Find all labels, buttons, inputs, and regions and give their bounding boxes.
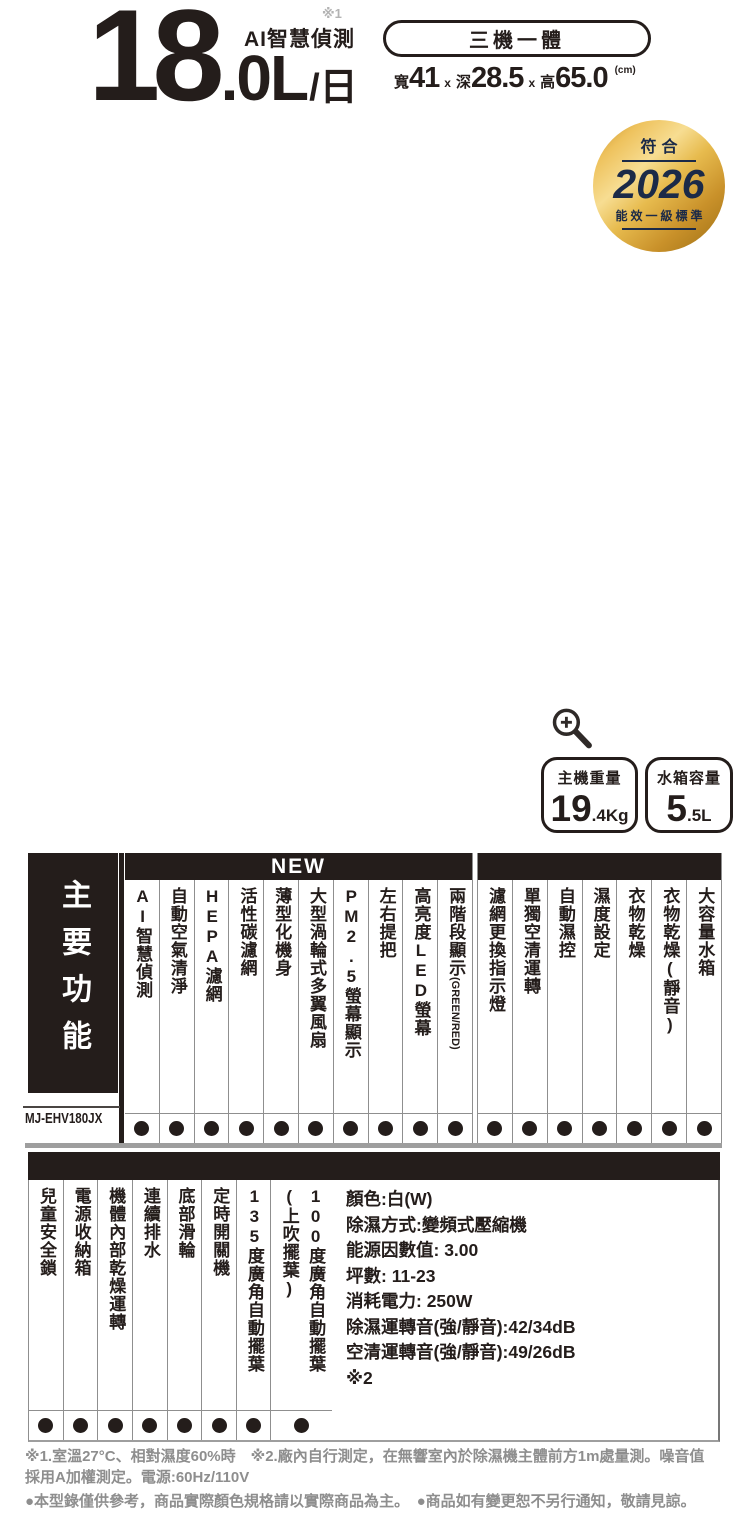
feature-column: 衣物乾燥(靜音) bbox=[651, 880, 686, 1113]
height-value: 65.0 bbox=[555, 62, 607, 94]
feature-column: 濕度設定 bbox=[582, 880, 617, 1113]
unit-weight-label: 主機重量 bbox=[544, 767, 635, 788]
other-features-group: 濾網更換指示燈單獨空清運轉自動濕控濕度設定衣物乾燥衣物乾燥(靜音)大容量水箱 bbox=[477, 853, 722, 1143]
daily-capacity: 18.0L/日 bbox=[88, 0, 358, 120]
height-label: 高 bbox=[540, 74, 555, 91]
feature-column: 兒童安全鎖 bbox=[29, 1180, 63, 1410]
capacity-per-day: /日 bbox=[309, 67, 358, 109]
new-features-group: NEW AI智慧偵測自動空氣清淨HEPA濾網活性碳濾網薄型化機身大型渦輪式多翼風… bbox=[125, 853, 473, 1143]
secondary-columns: 兒童安全鎖電源收納箱機體內部乾燥運轉連續排水底部滑輪定時開關機135度廣角自動擺… bbox=[29, 1180, 332, 1410]
feature-column: 電源收納箱 bbox=[63, 1180, 98, 1410]
footnote-line: ※1.室溫27°C、相對濕度60%時 ※2.廠內自行測定，在無響室內於除濕機主體… bbox=[25, 1447, 730, 1468]
feature-column: 定時開關機 bbox=[201, 1180, 236, 1410]
feature-dot bbox=[294, 1418, 309, 1433]
tank-capacity-box: 水箱容量 5.5L bbox=[645, 757, 733, 833]
feature-column: 機體內部乾燥運轉 bbox=[97, 1180, 132, 1410]
feature-dot-cell bbox=[270, 1411, 332, 1440]
main-features-title: 主要功能 bbox=[51, 879, 95, 1067]
ai-detect-label: AI智慧偵測 bbox=[244, 23, 355, 53]
dim-unit: (cm) bbox=[615, 65, 636, 76]
spec-line: 能源因數值: 3.00 bbox=[346, 1238, 718, 1264]
feature-dot-cell bbox=[437, 1114, 472, 1143]
feature-column: 100度廣角自動擺葉(上吹擺葉) bbox=[270, 1180, 332, 1410]
feature-column: 活性碳濾網 bbox=[228, 880, 263, 1113]
feature-dot bbox=[239, 1121, 254, 1136]
feature-dot-cell bbox=[263, 1114, 298, 1143]
secondary-features-table: 兒童安全鎖電源收納箱機體內部乾燥運轉連續排水底部滑輪定時開關機135度廣角自動擺… bbox=[25, 1152, 722, 1442]
tank-capacity-label: 水箱容量 bbox=[648, 767, 730, 788]
feature-dot bbox=[627, 1121, 642, 1136]
feature-column: 自動濕控 bbox=[547, 880, 582, 1113]
feature-dot bbox=[413, 1121, 428, 1136]
secondary-columns-area: 兒童安全鎖電源收納箱機體內部乾燥運轉連續排水底部滑輪定時開關機135度廣角自動擺… bbox=[28, 1180, 332, 1442]
feature-dot bbox=[343, 1121, 358, 1136]
feature-column: 薄型化機身 bbox=[263, 880, 298, 1113]
feature-dot-cell bbox=[194, 1114, 229, 1143]
feature-column: 濾網更換指示燈 bbox=[478, 880, 512, 1113]
new-features-dots-row bbox=[125, 1113, 472, 1143]
other-features-columns: 濾網更換指示燈單獨空清運轉自動濕控濕度設定衣物乾燥衣物乾燥(靜音)大容量水箱 bbox=[478, 880, 721, 1113]
feature-column: 大容量水箱 bbox=[686, 880, 721, 1113]
feature-dot-cell bbox=[582, 1114, 617, 1143]
spec-line: 空清運轉音(強/靜音):49/26dB bbox=[346, 1340, 718, 1366]
spec-line: 坪數: 11-23 bbox=[346, 1264, 718, 1290]
feature-column: PM2.5螢幕顯示 bbox=[333, 880, 368, 1113]
feature-dot-cell bbox=[616, 1114, 651, 1143]
table-divider-bar bbox=[119, 853, 124, 1143]
new-features-columns: AI智慧偵測自動空氣清淨HEPA濾網活性碳濾網薄型化機身大型渦輪式多翼風扇PM2… bbox=[125, 880, 472, 1113]
feature-dot bbox=[592, 1121, 607, 1136]
spec-line: 消耗電力: 250W bbox=[346, 1289, 718, 1315]
model-rule bbox=[23, 1106, 120, 1108]
feature-dot-cell bbox=[547, 1114, 582, 1143]
feature-dot-cell bbox=[167, 1411, 202, 1440]
model-number: MJ-EHV180JX bbox=[25, 1111, 113, 1127]
feature-dot-cell bbox=[686, 1114, 721, 1143]
features-header-bar bbox=[478, 853, 721, 880]
unit-weight-box: 主機重量 19.4Kg bbox=[541, 757, 638, 833]
feature-column: 單獨空清運轉 bbox=[512, 880, 547, 1113]
feature-column: 連續排水 bbox=[132, 1180, 167, 1410]
feature-dot bbox=[662, 1121, 677, 1136]
main-features-table: 主要功能 MJ-EHV180JX NEW AI智慧偵測自動空氣清淨HEPA濾網活… bbox=[25, 853, 722, 1148]
feature-dot bbox=[38, 1418, 53, 1433]
feature-column: 135度廣角自動擺葉 bbox=[236, 1180, 271, 1410]
pill-label: 三機一體 bbox=[469, 24, 565, 53]
feature-dot bbox=[378, 1121, 393, 1136]
width-label: 寬 bbox=[394, 74, 409, 91]
dimensions: 寬41x深28.5x高65.0(cm) bbox=[394, 64, 636, 93]
feature-column: 自動空氣清淨 bbox=[159, 880, 194, 1113]
feature-dot bbox=[212, 1418, 227, 1433]
badge-bottom-label: 能效一級標準 bbox=[612, 207, 705, 224]
secondary-dots-row bbox=[29, 1410, 332, 1440]
feature-column: 左右提把 bbox=[368, 880, 403, 1113]
energy-standard-badge: 符合 2026 能效一級標準 bbox=[593, 120, 725, 252]
feature-column: 高亮度LED螢幕 bbox=[402, 880, 437, 1113]
feature-dot bbox=[487, 1121, 502, 1136]
footnote-ref-1: ※1 bbox=[322, 6, 342, 22]
catalog-page: 18.0L/日 ※1 AI智慧偵測 三機一體 寬41x深28.5x高65.0(c… bbox=[0, 0, 750, 1515]
feature-dot-cell bbox=[97, 1411, 132, 1440]
feature-column: AI智慧偵測 bbox=[125, 880, 159, 1113]
feature-dot bbox=[134, 1121, 149, 1136]
badge-top-label: 符合 bbox=[635, 133, 682, 157]
feature-dot bbox=[274, 1121, 289, 1136]
badge-divider bbox=[622, 228, 696, 230]
other-features-dots-row bbox=[478, 1113, 721, 1143]
badge-year: 2026 bbox=[613, 164, 704, 205]
feature-dot bbox=[177, 1418, 192, 1433]
feature-dot-cell bbox=[228, 1114, 263, 1143]
feature-dot-cell bbox=[333, 1114, 368, 1143]
feature-column: 衣物乾燥 bbox=[616, 880, 651, 1113]
feature-dot bbox=[448, 1121, 463, 1136]
feature-dot-cell bbox=[132, 1411, 167, 1440]
feature-dot bbox=[142, 1418, 157, 1433]
feature-dot-cell bbox=[236, 1411, 271, 1440]
feature-dot-cell bbox=[368, 1114, 403, 1143]
table-bottom-rule bbox=[25, 1143, 722, 1148]
spec-line: 除濕方式:變頻式壓縮機 bbox=[346, 1213, 718, 1239]
depth-value: 28.5 bbox=[471, 62, 523, 94]
zoom-in-icon[interactable] bbox=[551, 708, 595, 752]
feature-dot bbox=[204, 1121, 219, 1136]
unit-weight-value: 19.4Kg bbox=[544, 790, 635, 827]
spec-line: 除濕運轉音(強/靜音):42/34dB bbox=[346, 1315, 718, 1341]
new-banner: NEW bbox=[125, 853, 472, 880]
capacity-integer: 18 bbox=[88, 0, 217, 128]
feature-dot bbox=[108, 1418, 123, 1433]
feature-column: 大型渦輪式多翼風扇 bbox=[298, 880, 333, 1113]
feature-dot-cell bbox=[402, 1114, 437, 1143]
feature-dot-cell bbox=[651, 1114, 686, 1143]
feature-dot-cell bbox=[478, 1114, 512, 1143]
feature-dot bbox=[522, 1121, 537, 1136]
feature-dot-cell bbox=[298, 1114, 333, 1143]
feature-column: 兩階段顯示(GREEN/RED) bbox=[437, 880, 472, 1113]
feature-dot-cell bbox=[29, 1411, 63, 1440]
feature-column: 底部滑輪 bbox=[167, 1180, 202, 1410]
feature-dot-cell bbox=[125, 1114, 159, 1143]
spec-list: 顏色:白(W)除濕方式:變頻式壓縮機能源因數值: 3.00坪數: 11-23消耗… bbox=[332, 1180, 720, 1442]
feature-dot bbox=[697, 1121, 712, 1136]
spec-line: ※2 bbox=[346, 1366, 718, 1392]
footnotes: ※1.室溫27°C、相對濕度60%時 ※2.廠內自行測定，在無響室內於除濕機主體… bbox=[25, 1447, 730, 1513]
dim-separator: x bbox=[444, 76, 451, 90]
new-banner-label: NEW bbox=[271, 855, 326, 879]
depth-label: 深 bbox=[456, 74, 471, 91]
feature-dot bbox=[169, 1121, 184, 1136]
footnote-line: 採用A加權測定。電源:60Hz/110V bbox=[25, 1468, 730, 1489]
feature-dot bbox=[73, 1418, 88, 1433]
feature-column: HEPA濾網 bbox=[194, 880, 229, 1113]
feature-dot-cell bbox=[159, 1114, 194, 1143]
feature-dot bbox=[308, 1121, 323, 1136]
feature-dot-cell bbox=[63, 1411, 98, 1440]
footnote-line: ●本型錄僅供參考，商品實際顏色規格請以實際商品為主。 ●商品如有變更恕不另行通知… bbox=[25, 1492, 730, 1513]
feature-dot bbox=[557, 1121, 572, 1136]
feature-dot-cell bbox=[201, 1411, 236, 1440]
three-in-one-pill: 三機一體 bbox=[383, 20, 651, 57]
tank-capacity-value: 5.5L bbox=[648, 790, 730, 827]
dim-separator: x bbox=[528, 76, 535, 90]
main-features-header: 主要功能 bbox=[28, 853, 118, 1093]
width-value: 41 bbox=[409, 62, 439, 94]
secondary-header-bar bbox=[28, 1152, 720, 1180]
spec-line: 顏色:白(W) bbox=[346, 1187, 718, 1213]
feature-dot-cell bbox=[512, 1114, 547, 1143]
feature-dot bbox=[246, 1418, 261, 1433]
